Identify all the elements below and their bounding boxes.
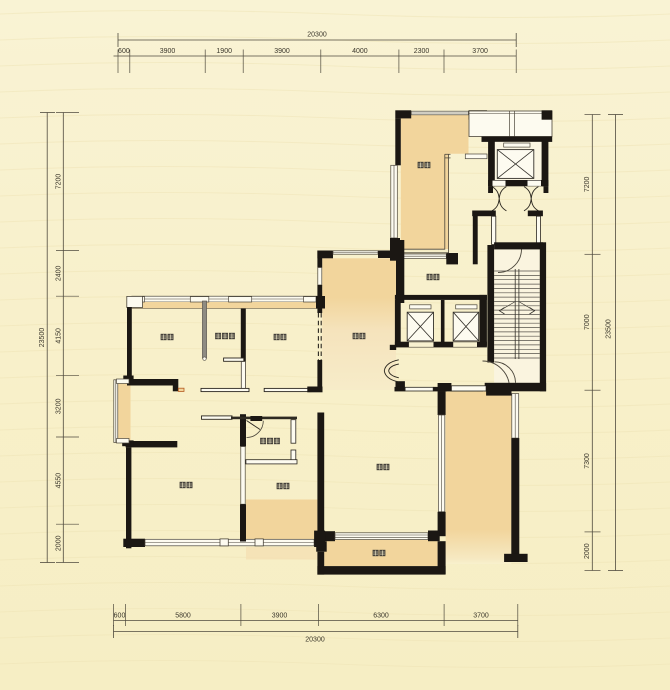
svg-text:5800: 5800: [175, 613, 191, 620]
svg-text:2000: 2000: [584, 543, 591, 559]
svg-text:23500: 23500: [606, 319, 613, 339]
svg-text:600: 600: [118, 48, 130, 55]
svg-text:3900: 3900: [274, 48, 290, 55]
svg-text:4000: 4000: [352, 48, 368, 55]
svg-text:2300: 2300: [414, 48, 430, 55]
svg-text:7200: 7200: [56, 174, 63, 190]
svg-text:4150: 4150: [56, 328, 63, 344]
svg-text:3200: 3200: [56, 398, 63, 414]
svg-text:3900: 3900: [272, 613, 288, 620]
svg-text:600: 600: [114, 613, 126, 620]
svg-text:7200: 7200: [584, 177, 591, 193]
svg-text:2000: 2000: [56, 535, 63, 551]
svg-text:3700: 3700: [473, 613, 489, 620]
svg-text:1900: 1900: [216, 48, 232, 55]
svg-text:7000: 7000: [584, 314, 591, 330]
svg-text:23500: 23500: [39, 328, 46, 348]
svg-text:2400: 2400: [56, 266, 63, 282]
svg-text:3900: 3900: [160, 48, 176, 55]
svg-text:20300: 20300: [305, 637, 325, 644]
svg-text:3700: 3700: [472, 48, 488, 55]
svg-text:7300: 7300: [584, 453, 591, 469]
svg-text:6300: 6300: [373, 613, 389, 620]
svg-text:4550: 4550: [56, 473, 63, 489]
svg-text:20300: 20300: [307, 32, 327, 39]
